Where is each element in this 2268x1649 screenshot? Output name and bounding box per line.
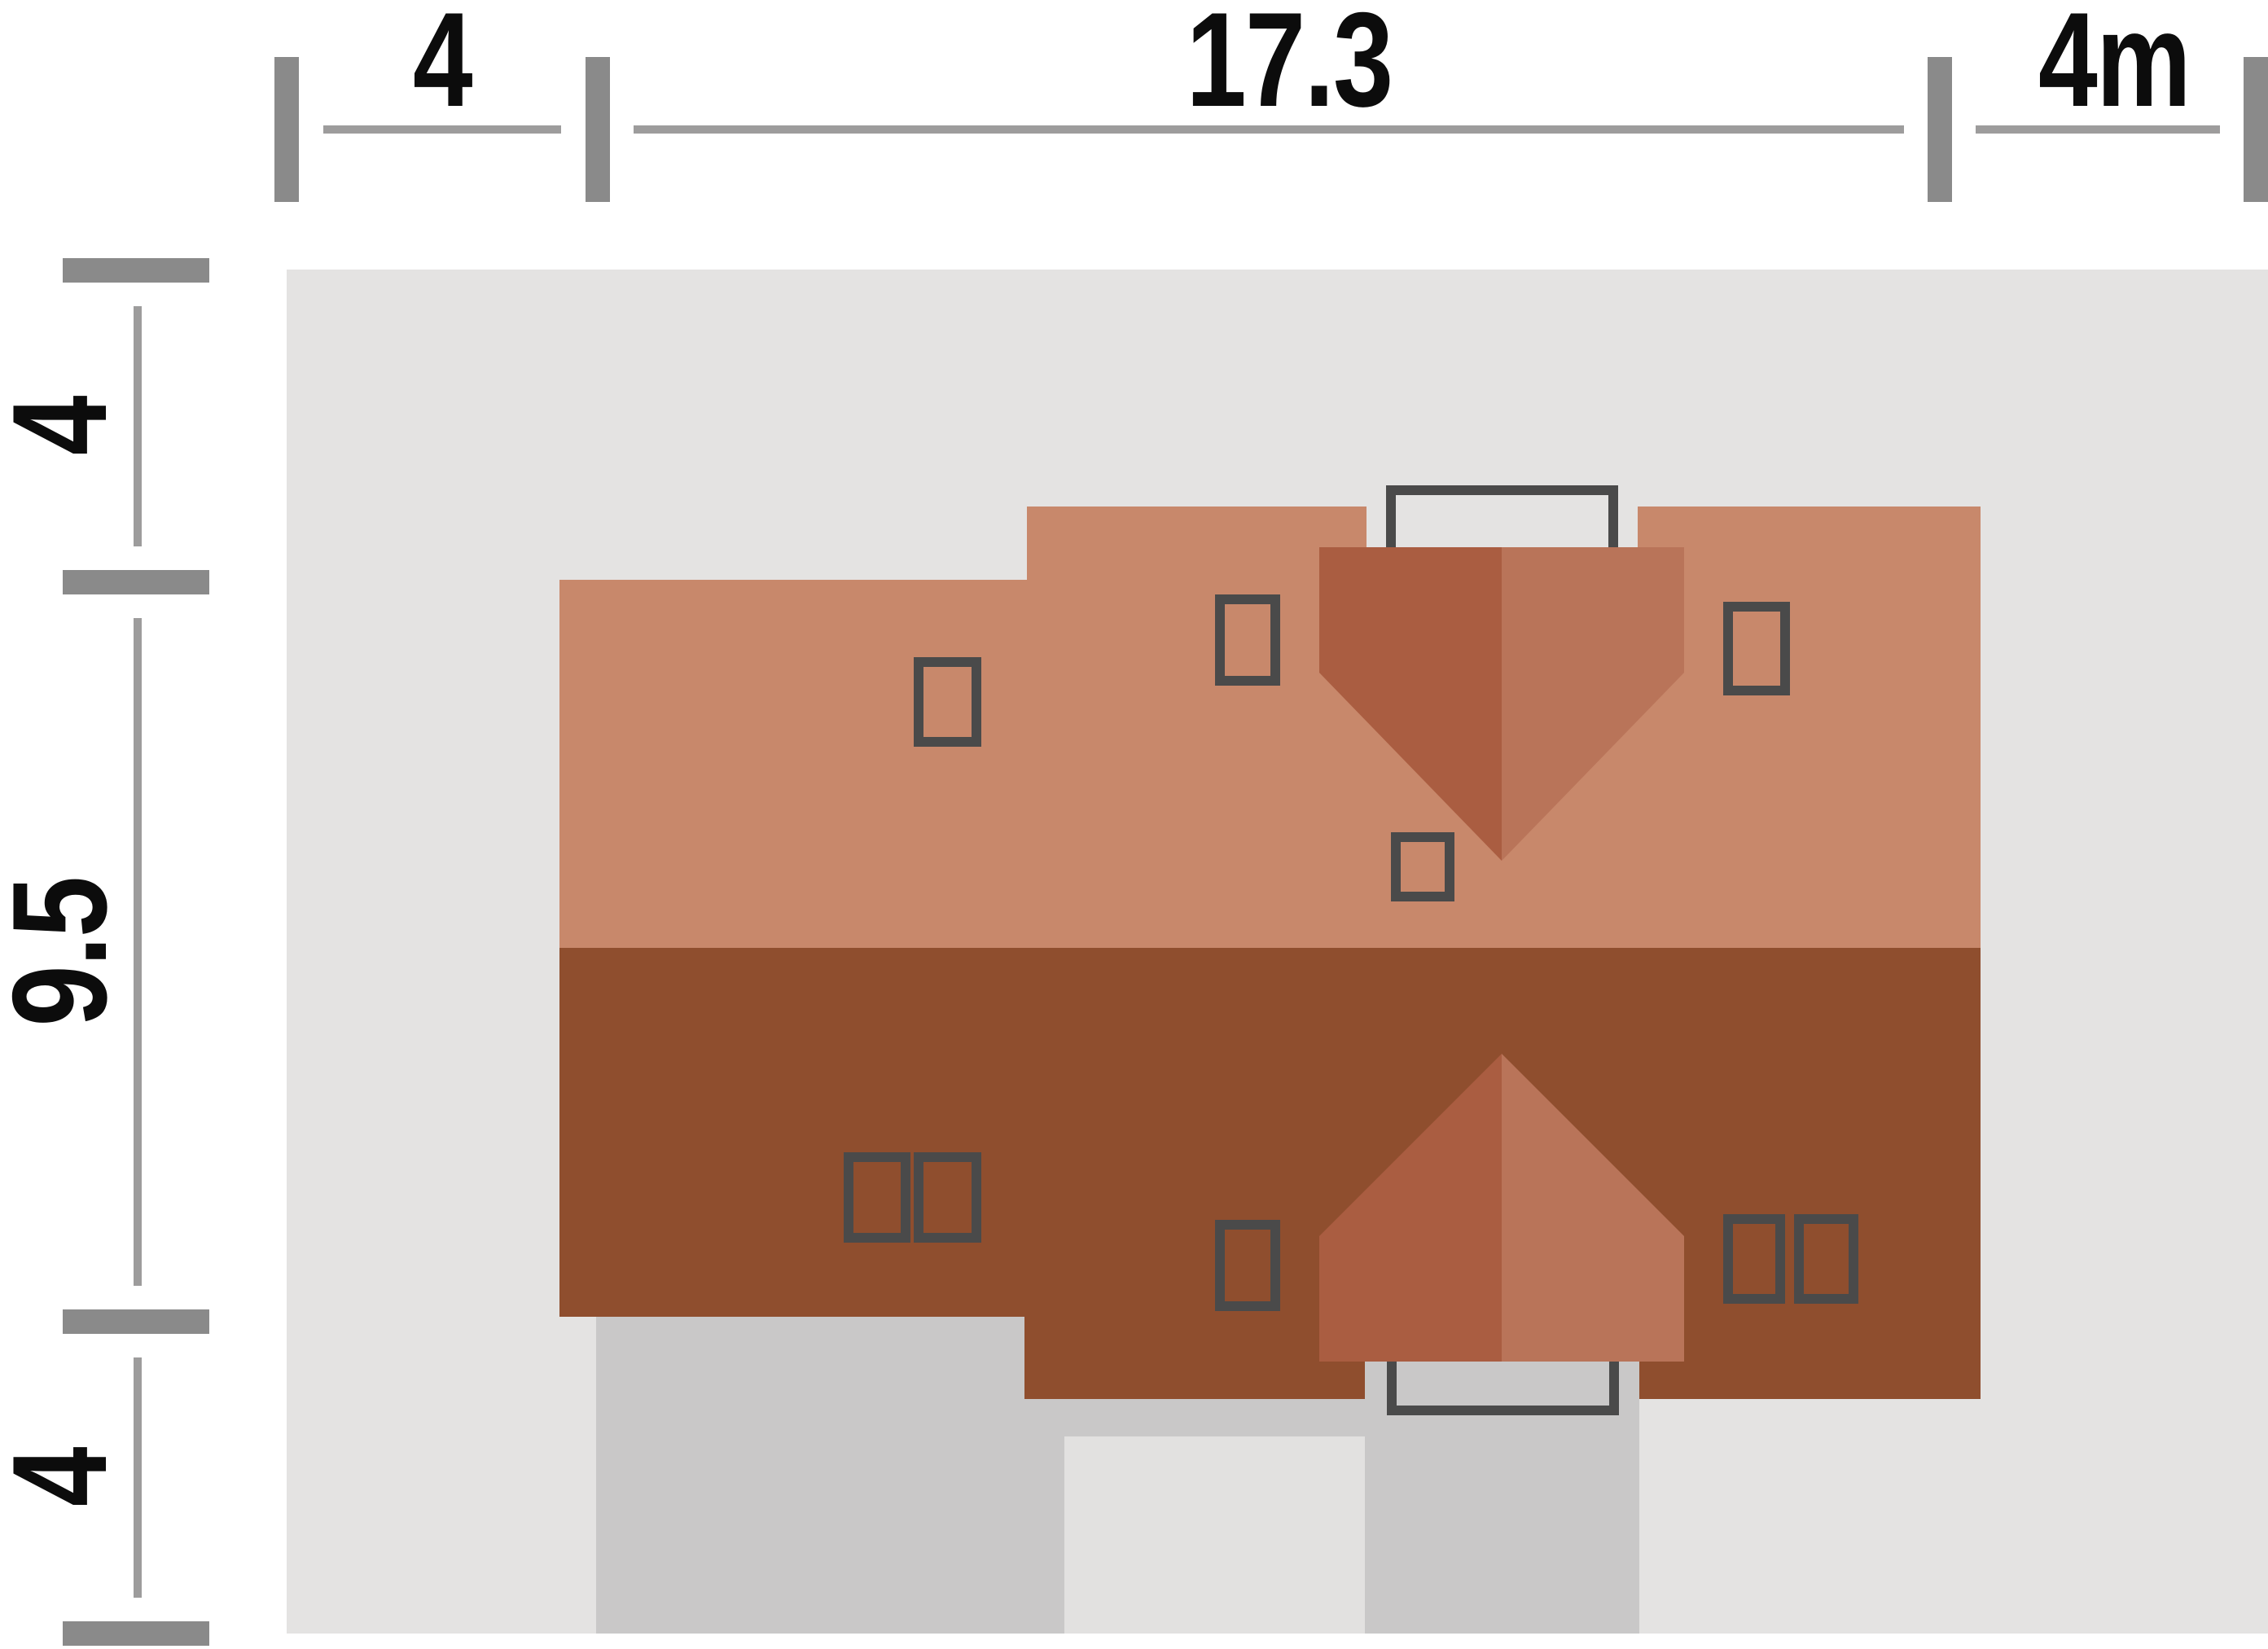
site-plan-canvas: 4 17.3 4m 4 9.5 4 (0, 0, 2268, 1649)
dim-tick (63, 1309, 209, 1334)
driveway-side-strip (1024, 1399, 1064, 1634)
dim-label-top-margin: 4 (0, 396, 134, 455)
dim-tick (586, 57, 610, 202)
dimension-chain-left: 4 9.5 4 (0, 258, 209, 1646)
terrace-light-paving (1064, 1436, 1365, 1634)
dim-tick (274, 57, 299, 202)
chimney-bottom (1392, 1357, 1614, 1410)
walkway-strip (1064, 1399, 1365, 1436)
dim-tick (2244, 57, 2268, 202)
dim-label-bottom-margin: 4 (0, 1447, 134, 1506)
dim-line (134, 1357, 142, 1598)
dim-line (134, 618, 142, 1286)
dim-label-house-depth: 9.5 (0, 878, 134, 1027)
dim-tick (63, 570, 209, 594)
dim-label-right-margin: 4m (2038, 0, 2190, 134)
dim-label-left-margin: 4 (413, 0, 472, 134)
site-plan-drawing: 4 17.3 4m 4 9.5 4 (0, 0, 2268, 1649)
dim-label-house-width: 17.3 (1187, 0, 1393, 134)
dim-tick (63, 1621, 209, 1646)
dimension-chain-top: 4 17.3 4m (274, 0, 2268, 202)
dim-line (134, 306, 142, 546)
dim-tick (1928, 57, 1952, 202)
dim-tick (63, 258, 209, 283)
driveway (596, 1317, 1024, 1634)
